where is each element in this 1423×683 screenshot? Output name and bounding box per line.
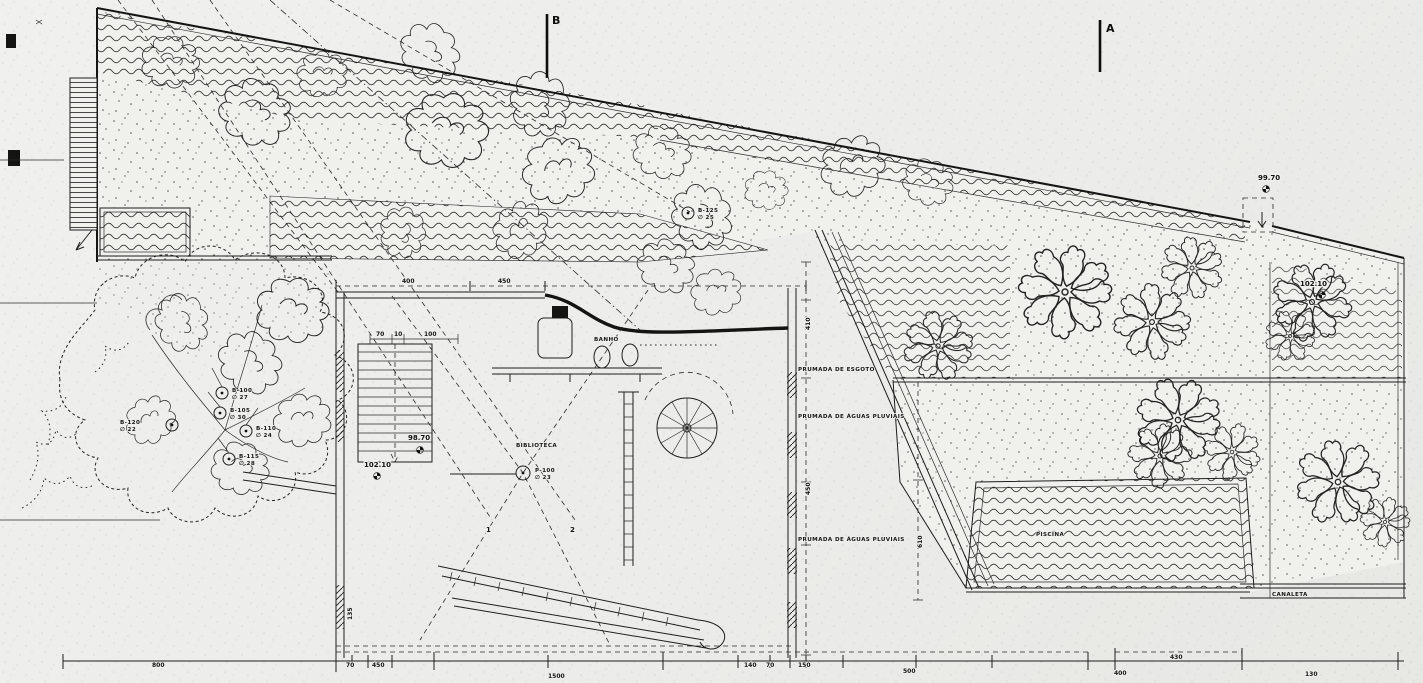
label-banho: BANHO <box>594 337 619 343</box>
section-label-b: B <box>552 14 560 27</box>
dim-label: 130 <box>1305 671 1318 678</box>
section-point-2: 2 <box>570 526 575 534</box>
dim-label: 70 <box>346 662 354 669</box>
level-stair-landing: 98.70 <box>408 434 430 442</box>
dim-label: 1500 <box>548 673 565 680</box>
tree-tag-id: B-125 <box>698 208 718 214</box>
dim-label: 410 <box>805 317 812 330</box>
dim-label: 70 <box>766 662 774 669</box>
tree-tag-id: B-100 <box>232 388 252 394</box>
label-prumada-pluviais-2: PRUMADA DE ÁGUAS PLUVIAIS <box>798 536 905 543</box>
label-prumada-pluviais-1: PRUMADA DE ÁGUAS PLUVIAIS <box>798 413 905 420</box>
dim-label: 450 <box>805 482 812 495</box>
level-terrace: 102.10 <box>1300 280 1327 288</box>
dim-label: 10 <box>394 331 402 338</box>
section-point-1: 1 <box>486 526 491 534</box>
dim-label: 450 <box>372 662 385 669</box>
dim-label: 450 <box>498 278 511 285</box>
tree-tag-id: B-110 <box>256 426 276 432</box>
dim-label: 140 <box>744 662 757 669</box>
scanned-site-plan: 800 70 450 1500 140 70 150 500 430 400 1… <box>0 0 1423 683</box>
tree-tag-diameter: ∅ 27 <box>232 395 248 401</box>
label-canaleta: CANALETA <box>1272 592 1308 598</box>
level-roof-edge: 99.70 <box>1258 174 1280 182</box>
tree-tag-id: B-120 <box>120 420 140 426</box>
section-label-a: A <box>1106 22 1115 35</box>
tree-tag-diameter: ∅ 28 <box>239 461 255 467</box>
swimming-pool <box>966 478 1254 588</box>
dim-label: 400 <box>1114 670 1127 677</box>
dim-label: 500 <box>903 668 916 675</box>
dim-label: 150 <box>798 662 811 669</box>
tree-tag-diameter: ∅ 22 <box>120 427 136 433</box>
label-biblioteca: BIBLIOTECA <box>516 443 557 449</box>
tree-tag-diameter: ∅ 30 <box>230 415 246 421</box>
label-piscina: PISCINA <box>1036 532 1064 538</box>
dim-label: 610 <box>917 535 924 548</box>
plan-drawing: 800 70 450 1500 140 70 150 500 430 400 1… <box>0 0 1423 683</box>
tree-tag-diameter: ∅ 23 <box>535 475 551 481</box>
tree-tag-diameter: ∅ 25 <box>698 215 714 221</box>
dim-label: 135 <box>347 607 354 620</box>
small-upper-pool <box>100 208 190 256</box>
dim-label: 100 <box>424 331 437 338</box>
dim-label: 800 <box>152 662 165 669</box>
tree-tag-id: B-115 <box>239 454 259 460</box>
tree-tag-diameter: ∅ 24 <box>256 433 272 439</box>
tree-tag-id: B-105 <box>230 408 250 414</box>
dim-label: 70 <box>376 331 384 338</box>
dim-label: 430 <box>1170 654 1183 661</box>
label-prumada-esgoto: PRUMADA DE ESGOTO <box>798 367 875 373</box>
level-court: 102.10 <box>364 461 391 469</box>
dim-label: 400 <box>402 278 415 285</box>
tree-tag-id: P-100 <box>535 468 555 474</box>
